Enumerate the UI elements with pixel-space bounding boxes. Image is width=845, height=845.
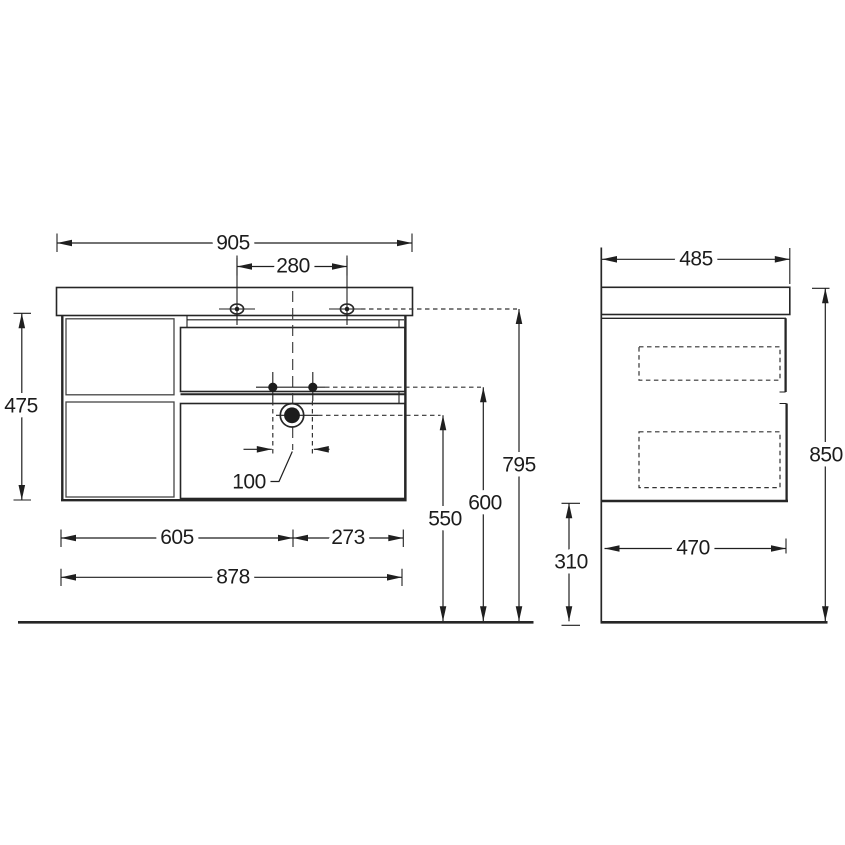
dim-label-cabinet-depth: 470 [676, 537, 710, 560]
dim-overall-height: 850 [809, 288, 843, 621]
dim-section-widths: 605 273 [61, 526, 403, 549]
side-countertop [601, 287, 790, 314]
dim-label-cabinet-height: 475 [4, 395, 38, 418]
dim-countertop-depth: 485 [602, 248, 790, 285]
side-drawer-top-hidden [639, 347, 780, 380]
dim-label-countertop-width: 905 [216, 232, 250, 255]
dim-cabinet-depth: 470 [605, 537, 787, 560]
projection-leaders [273, 309, 517, 456]
dim-faucet-spacing: 280 [237, 255, 347, 278]
dim-label-drain-offset: 100 [232, 471, 266, 494]
drain-hole [284, 407, 300, 423]
side-view: 485 850 310 470 [554, 248, 843, 626]
front-countertop [57, 288, 413, 316]
side-drawer-gap [780, 392, 787, 404]
dim-drain-height: 550 [428, 415, 462, 621]
dim-label-floor-clearance: 310 [554, 551, 588, 574]
open-shelf-top [66, 319, 174, 395]
cabinet-rail-lines [187, 316, 404, 404]
dim-label-drain-height: 550 [428, 508, 462, 531]
supply-hole-right [308, 383, 317, 392]
dim-label-left-section-width: 605 [160, 526, 194, 549]
dim-label-overall-height: 850 [809, 444, 843, 467]
dim-label-right-section-width: 273 [331, 526, 365, 549]
dim-supply-holes-height: 600 [468, 387, 502, 621]
side-cabinet-front-edge [786, 318, 787, 501]
vanity-dimension-drawing: 905 280 475 100 605 273 [0, 0, 845, 845]
faucet-hole-left-center [235, 307, 240, 312]
open-shelf-bottom [66, 402, 174, 497]
side-cabinet [601, 318, 789, 501]
dim-label-worktop-underside-height: 795 [502, 454, 536, 477]
supply-hole-left [268, 383, 277, 392]
dim-cabinet-width: 878 [61, 566, 402, 589]
side-drawer-bottom-hidden [639, 432, 780, 488]
dim-worktop-underside-height: 795 [502, 309, 536, 621]
dim-label-countertop-depth: 485 [679, 248, 713, 271]
dim-drain-offset: 100 [232, 449, 329, 493]
dim-countertop-width: 905 [57, 232, 412, 255]
dim-floor-clearance: 310 [554, 503, 588, 625]
faucet-hole-right-center [345, 307, 350, 312]
dim-label-supply-holes-height: 600 [468, 492, 502, 515]
dim-label-faucet-spacing: 280 [276, 255, 310, 278]
dim-cabinet-height: 475 [4, 313, 38, 500]
technical-drawing-canvas: 905 280 475 100 605 273 [0, 0, 845, 845]
front-view: 905 280 475 100 605 273 [4, 232, 536, 623]
dim-label-cabinet-width: 878 [216, 566, 250, 589]
leader-line [268, 452, 293, 482]
